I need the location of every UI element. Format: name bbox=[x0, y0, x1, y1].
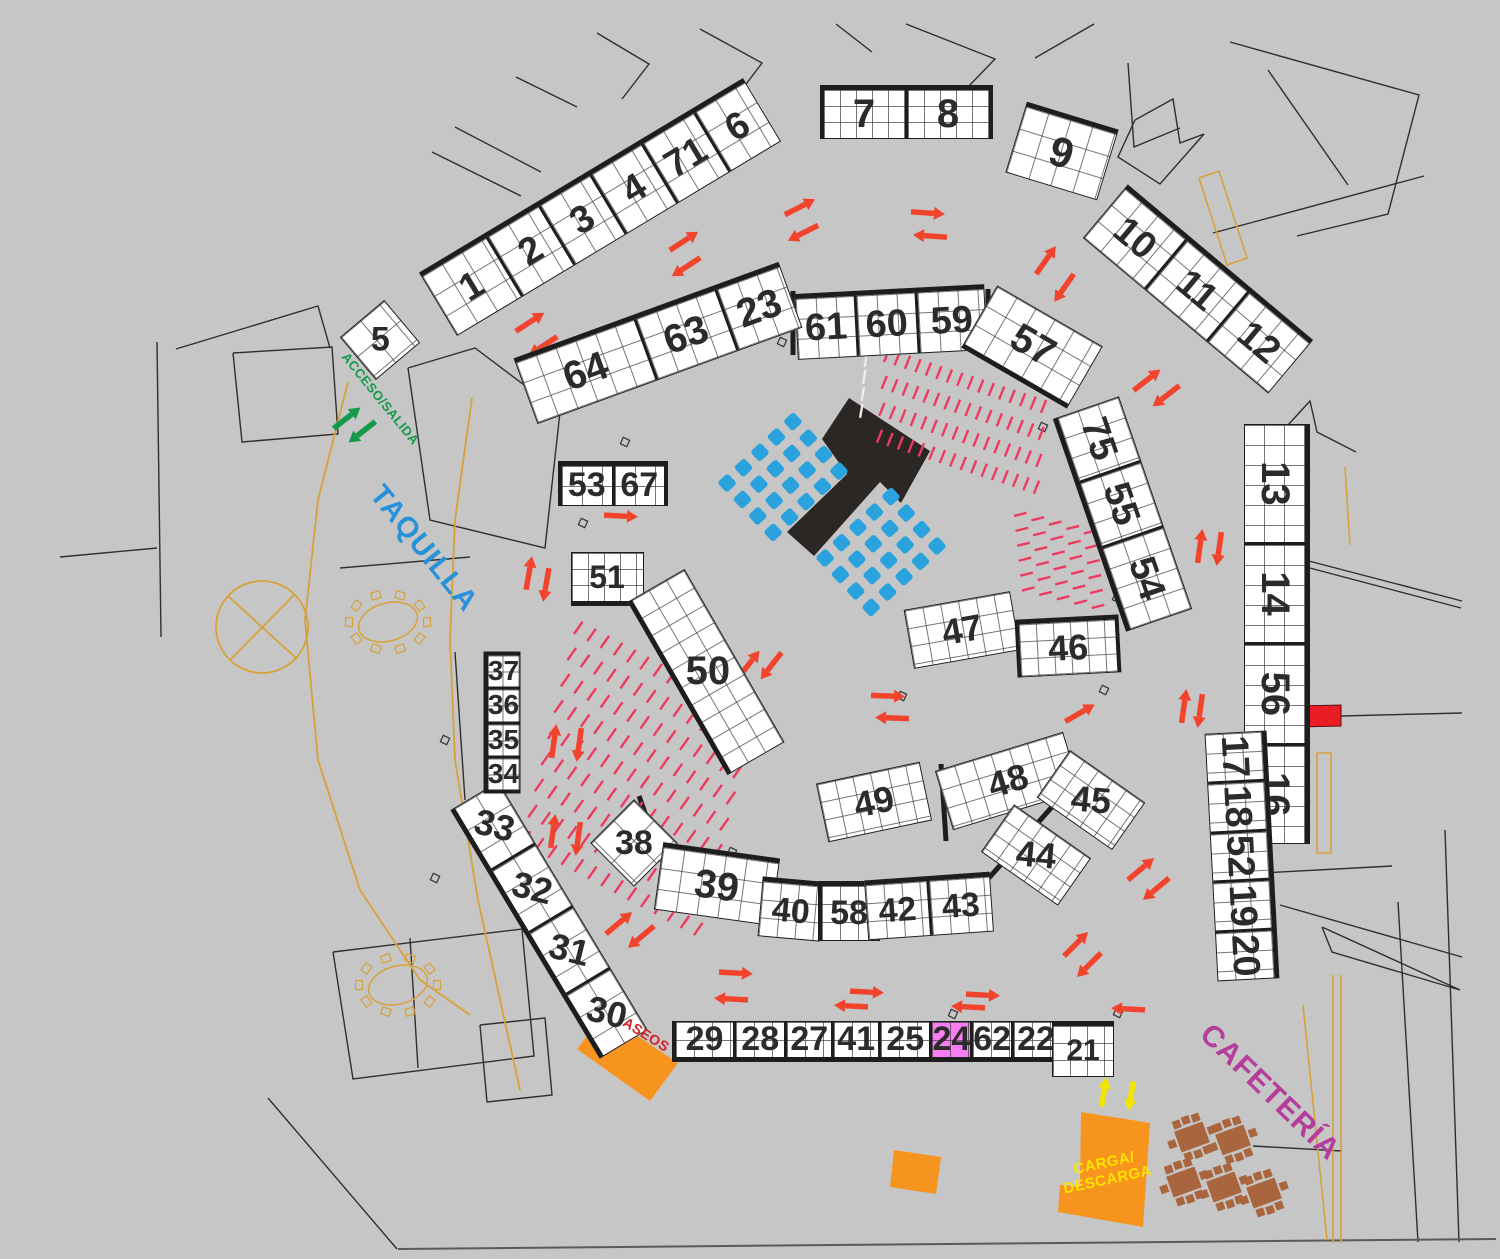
booth-number: 60 bbox=[865, 304, 909, 344]
wall-line bbox=[1306, 567, 1461, 608]
seat-row-mark bbox=[654, 783, 663, 795]
chair-outline bbox=[424, 963, 435, 974]
seat-row-mark bbox=[1005, 444, 1010, 457]
cafeteria-table bbox=[1222, 1118, 1232, 1128]
seat-row-mark bbox=[700, 778, 709, 790]
flow-arrow-head bbox=[989, 989, 1000, 1002]
flow-arrow-shaft bbox=[577, 822, 580, 845]
seat-row-mark bbox=[681, 916, 690, 928]
seat-row-mark bbox=[574, 681, 583, 693]
booth-21: 21 bbox=[1053, 1026, 1113, 1076]
booth-60: 60 bbox=[853, 293, 917, 356]
wall-line bbox=[1268, 70, 1348, 185]
flow-arrow-shaft bbox=[1199, 694, 1202, 717]
blue-seat bbox=[927, 536, 947, 556]
booth-strip-40: 40 bbox=[758, 876, 825, 941]
cafeteria-table bbox=[1222, 1162, 1232, 1172]
flow-arrow-shaft bbox=[516, 319, 535, 332]
blue-seat bbox=[865, 502, 885, 522]
seat-row-mark bbox=[1055, 581, 1068, 584]
blue-seat bbox=[798, 428, 818, 448]
seat-row-mark bbox=[654, 723, 663, 735]
seat-row-mark bbox=[1022, 587, 1035, 590]
booth-number: 23 bbox=[731, 282, 786, 335]
booth-53: 53 bbox=[562, 466, 612, 505]
cafeteria-table bbox=[1175, 1196, 1185, 1206]
flow-arrow-head bbox=[1098, 1077, 1111, 1089]
flow-arrow-shaft bbox=[962, 1007, 985, 1008]
blue-seat bbox=[880, 519, 900, 539]
flow-arrow-shaft bbox=[1161, 386, 1179, 400]
seat-row-mark bbox=[594, 781, 603, 793]
seat-row-mark bbox=[548, 786, 557, 798]
seat-row-mark bbox=[561, 793, 570, 805]
seat-row-mark bbox=[978, 380, 983, 393]
seat-row-mark bbox=[561, 674, 570, 686]
booth-number: 17 bbox=[1215, 735, 1255, 779]
seat-row-mark bbox=[862, 387, 864, 401]
flow-arrow-shaft bbox=[606, 919, 624, 934]
cafeteria-table bbox=[1255, 1207, 1265, 1217]
wall-line bbox=[455, 652, 465, 800]
seat-row-mark bbox=[926, 363, 931, 376]
seat-row-mark bbox=[641, 895, 650, 907]
seat-row-mark bbox=[528, 805, 537, 817]
cafeteria-table bbox=[1172, 1119, 1182, 1129]
seat-row-mark bbox=[1013, 474, 1018, 487]
seat-row-mark bbox=[968, 376, 973, 389]
seat-row-mark bbox=[561, 852, 570, 864]
booth-number: 28 bbox=[741, 1022, 779, 1056]
blue-seat bbox=[717, 473, 737, 493]
booth-36: 36 bbox=[489, 686, 520, 720]
door-marker bbox=[440, 735, 449, 744]
chair-outline bbox=[361, 996, 372, 1007]
flow-arrow-shaft bbox=[719, 972, 742, 973]
booth-strip-42-43: 4243 bbox=[864, 872, 994, 941]
seat-row-mark bbox=[986, 410, 991, 423]
booth-37: 37 bbox=[489, 655, 520, 686]
seat-row-mark bbox=[976, 407, 981, 420]
cafeteria-table bbox=[1193, 1149, 1203, 1159]
booth-number: 47 bbox=[939, 609, 985, 651]
seat-row-mark bbox=[628, 888, 637, 900]
seat-row-mark bbox=[535, 779, 544, 791]
cafeteria-table bbox=[1190, 1112, 1200, 1122]
booth-number: 12 bbox=[1230, 314, 1287, 370]
wall-line bbox=[268, 1098, 397, 1249]
blue-seat bbox=[763, 522, 783, 542]
blue-seat bbox=[896, 503, 916, 523]
chair-outline bbox=[356, 981, 363, 990]
flow-arrow-head bbox=[547, 814, 560, 826]
booth-number: 42 bbox=[877, 892, 917, 929]
seat-row-mark bbox=[575, 859, 584, 871]
seat-row-mark bbox=[1092, 605, 1105, 608]
flow-arrow-head bbox=[1194, 529, 1207, 541]
seat-row-mark bbox=[929, 447, 934, 460]
seat-row-mark bbox=[634, 683, 643, 695]
booth-number: 14 bbox=[1255, 571, 1295, 616]
seat-row-mark bbox=[1016, 528, 1029, 531]
seat-row-mark bbox=[693, 745, 702, 757]
booth-number: 21 bbox=[1066, 1036, 1099, 1066]
booth-strip-46: 46 bbox=[1015, 614, 1122, 677]
wall-line bbox=[1128, 63, 1180, 147]
booth-number: 32 bbox=[508, 865, 556, 910]
booth-20: 20 bbox=[1216, 928, 1275, 981]
seat-row-mark bbox=[1036, 454, 1041, 467]
seat-row-mark bbox=[1036, 562, 1049, 565]
flow-arrow-head bbox=[714, 992, 725, 1005]
chair-outline bbox=[395, 644, 406, 653]
seat-row-mark bbox=[568, 767, 577, 779]
booth-number: 52 bbox=[1220, 834, 1260, 878]
seat-row-mark bbox=[1033, 532, 1046, 535]
seat-row-mark bbox=[647, 750, 656, 762]
flow-arrow-shaft bbox=[785, 204, 805, 214]
seat-row-mark bbox=[588, 748, 597, 760]
seat-row-mark bbox=[913, 386, 918, 399]
seat-row-mark bbox=[587, 629, 596, 641]
seat-row-mark bbox=[1038, 577, 1051, 580]
seat-row-mark bbox=[932, 420, 937, 433]
chair-outline bbox=[414, 600, 425, 611]
chair-outline bbox=[351, 633, 362, 644]
cafeteria-table bbox=[1225, 1199, 1235, 1209]
cafeteria-table bbox=[1173, 1160, 1183, 1170]
chair-outline bbox=[381, 954, 392, 963]
seat-row-mark bbox=[601, 755, 610, 767]
booth-number: 4 bbox=[615, 167, 653, 210]
cafeteria-table bbox=[1265, 1205, 1275, 1215]
booth-34: 34 bbox=[489, 755, 520, 789]
seat-row-mark bbox=[1019, 558, 1032, 561]
cafeteria-table bbox=[1164, 1164, 1174, 1174]
seat-row-mark bbox=[627, 769, 636, 781]
seat-row-mark bbox=[673, 704, 682, 716]
cafeteria-table bbox=[1243, 1147, 1253, 1157]
cafeteria-table bbox=[1159, 1184, 1169, 1194]
booth-number: 57 bbox=[1004, 317, 1063, 374]
door-marker bbox=[578, 518, 587, 527]
booth-40: 40 bbox=[759, 881, 823, 940]
booth-52: 52 bbox=[1211, 828, 1270, 881]
seat-row-mark bbox=[1068, 541, 1081, 544]
exhibition-floor-plan: 1234716578910111261605957646323755554131… bbox=[0, 0, 1500, 1259]
booth-13: 13 bbox=[1245, 425, 1305, 542]
flow-arrow-shaft bbox=[636, 926, 654, 941]
booth-strip-7-8: 78 bbox=[820, 85, 993, 139]
wall-line bbox=[516, 77, 577, 107]
seat-row-mark bbox=[1052, 551, 1065, 554]
booth-42: 42 bbox=[865, 881, 929, 939]
booth-51: 51 bbox=[572, 553, 643, 601]
flow-arrow-shaft bbox=[1061, 274, 1074, 293]
seat-row-mark bbox=[601, 695, 610, 707]
wall-line bbox=[60, 548, 157, 557]
flow-arrow-head bbox=[1111, 1002, 1122, 1015]
booth-62: 62 bbox=[970, 1022, 1011, 1057]
booth-number: 19 bbox=[1223, 884, 1263, 928]
booth-56: 56 bbox=[1245, 642, 1305, 742]
seat-row-mark bbox=[588, 867, 597, 879]
seat-row-mark bbox=[923, 390, 928, 403]
seat-row-mark bbox=[921, 416, 926, 429]
chair-outline bbox=[424, 996, 435, 1007]
booth-number: 35 bbox=[488, 725, 519, 753]
booth-strip-37-34: 37363534 bbox=[484, 651, 521, 793]
seat-row-mark bbox=[1039, 592, 1052, 595]
seat-row-mark bbox=[942, 423, 947, 436]
seat-row-mark bbox=[1054, 566, 1067, 569]
blue-seat bbox=[847, 549, 867, 569]
seat-row-mark bbox=[1070, 556, 1083, 559]
flow-arrow-head bbox=[539, 590, 552, 602]
flow-arrow-shaft bbox=[1198, 540, 1201, 563]
flow-arrow-shaft bbox=[526, 567, 530, 590]
wall-line bbox=[233, 347, 338, 442]
flow-arrow-shaft bbox=[578, 728, 581, 751]
round-table-outline bbox=[354, 596, 422, 648]
booth-number: 6 bbox=[719, 105, 757, 148]
wall-line bbox=[906, 24, 995, 89]
orange-block bbox=[890, 1150, 941, 1194]
flow-arrow-head bbox=[524, 556, 537, 568]
seat-row-mark bbox=[687, 771, 696, 783]
blue-seat bbox=[862, 566, 882, 586]
seat-row-mark bbox=[1073, 586, 1086, 589]
seat-row-mark bbox=[720, 818, 729, 830]
wall-line bbox=[1317, 753, 1331, 853]
booth-number: 67 bbox=[620, 468, 658, 502]
seat-row-mark bbox=[1015, 447, 1020, 460]
blue-seat bbox=[831, 565, 851, 585]
seat-row-mark bbox=[940, 450, 945, 463]
seat-row-mark bbox=[1041, 400, 1046, 413]
seat-row-mark bbox=[1087, 560, 1100, 563]
seat-row-mark bbox=[1020, 393, 1025, 406]
seat-row-mark bbox=[660, 697, 669, 709]
seat-row-mark bbox=[1017, 543, 1030, 546]
booth-18: 18 bbox=[1208, 779, 1267, 832]
seat-row-mark bbox=[674, 823, 683, 835]
booth-strip-61-59: 616059 bbox=[794, 284, 987, 360]
seat-row-mark bbox=[1020, 573, 1033, 576]
seat-row-mark bbox=[890, 406, 895, 419]
seat-row-mark bbox=[587, 688, 596, 700]
seat-row-mark bbox=[955, 400, 960, 413]
flow-arrow-shaft bbox=[1065, 710, 1085, 722]
booth-number: 58 bbox=[830, 896, 868, 930]
wall-line bbox=[480, 1018, 552, 1102]
seat-row-mark bbox=[1018, 420, 1023, 433]
booth-41: 41 bbox=[831, 1022, 878, 1057]
seat-row-mark bbox=[554, 700, 563, 712]
booth-number: 24 bbox=[932, 1022, 970, 1056]
seat-row-mark bbox=[1002, 471, 1007, 484]
blue-seat bbox=[911, 551, 931, 571]
seat-row-mark bbox=[674, 764, 683, 776]
booth-number: 39 bbox=[692, 863, 742, 909]
seat-row-mark bbox=[1089, 575, 1102, 578]
door-marker bbox=[620, 437, 629, 446]
flow-arrow-shaft bbox=[552, 735, 555, 758]
booth-43: 43 bbox=[926, 877, 993, 935]
seat-row-mark bbox=[965, 403, 970, 416]
blue-seat bbox=[895, 535, 915, 555]
seat-row-mark bbox=[1090, 590, 1103, 593]
booth-46: 46 bbox=[1019, 620, 1118, 677]
chair-outline bbox=[346, 618, 353, 627]
seat-row-mark bbox=[1014, 513, 1027, 516]
seat-row-mark bbox=[882, 376, 887, 389]
blue-seat bbox=[797, 460, 817, 480]
seat-row-mark bbox=[1057, 596, 1070, 599]
booth-number: 50 bbox=[685, 651, 730, 691]
flow-arrow-head bbox=[571, 844, 584, 856]
seat-row-mark bbox=[1074, 601, 1087, 604]
flow-arrow-shaft bbox=[1218, 532, 1221, 555]
seat-row-mark bbox=[581, 833, 590, 845]
seat-row-mark bbox=[614, 881, 623, 893]
seat-row-mark bbox=[680, 797, 689, 809]
seat-row-mark bbox=[953, 427, 958, 440]
seat-row-mark bbox=[1030, 397, 1035, 410]
chair-outline bbox=[424, 618, 431, 627]
seat-row-mark bbox=[680, 737, 689, 749]
booth-number: 43 bbox=[941, 888, 981, 925]
flow-arrow-head bbox=[572, 750, 585, 762]
booth-28: 28 bbox=[733, 1022, 784, 1057]
booth-number: 64 bbox=[558, 345, 613, 398]
wall-line bbox=[597, 33, 649, 99]
seat-row-mark bbox=[903, 383, 908, 396]
cafeteria-table-group bbox=[1202, 1111, 1264, 1169]
seat-row-mark bbox=[1049, 522, 1062, 525]
seat-row-mark bbox=[555, 760, 564, 772]
chair-outline bbox=[351, 600, 362, 611]
blue-seat bbox=[764, 491, 784, 511]
cafeteria-table bbox=[1181, 1115, 1191, 1125]
seat-row-mark bbox=[944, 396, 949, 409]
wall-line bbox=[1445, 830, 1459, 1242]
flow-arrow-shaft bbox=[911, 212, 934, 214]
booth-25: 25 bbox=[878, 1022, 929, 1057]
seat-row-mark bbox=[627, 650, 636, 662]
seat-row-mark bbox=[963, 430, 968, 443]
flow-arrow-shaft bbox=[1134, 376, 1152, 390]
wall-line bbox=[305, 382, 470, 1015]
flow-arrow-shaft bbox=[1182, 700, 1185, 723]
seat-row-mark bbox=[568, 826, 577, 838]
seat-row-mark bbox=[1010, 390, 1015, 403]
blue-seat bbox=[733, 490, 753, 510]
booth-number: 11 bbox=[1169, 263, 1224, 318]
seat-row-mark bbox=[1028, 424, 1033, 437]
seat-row-mark bbox=[607, 728, 616, 740]
seat-row-mark bbox=[905, 356, 910, 369]
blue-seat bbox=[734, 458, 754, 478]
seat-row-mark bbox=[621, 736, 630, 748]
wall-line bbox=[1398, 902, 1418, 1242]
flow-arrow-shaft bbox=[1128, 865, 1146, 880]
booth-number: 5 bbox=[371, 323, 390, 357]
cafeteria-table bbox=[1253, 1171, 1263, 1181]
seat-row-mark bbox=[713, 785, 722, 797]
booth-24: 24 bbox=[929, 1022, 970, 1057]
flow-arrow-shaft bbox=[767, 653, 781, 671]
blue-seat bbox=[863, 534, 883, 554]
booth-number: 36 bbox=[488, 691, 519, 719]
blue-seat bbox=[767, 427, 787, 447]
wall-line bbox=[1213, 176, 1424, 233]
booth-number: 13 bbox=[1255, 461, 1295, 506]
seat-row-mark bbox=[574, 622, 583, 634]
flow-arrow-shaft bbox=[545, 568, 549, 591]
seat-row-mark bbox=[575, 800, 584, 812]
booth-number: 54 bbox=[1121, 552, 1171, 604]
booth-number: 10 bbox=[1106, 210, 1163, 266]
booth-strip-29-22: 2928274125246222 bbox=[672, 1021, 1062, 1062]
seat-row-mark bbox=[992, 467, 997, 480]
cafeteria-table-group bbox=[1233, 1164, 1295, 1222]
blue-seat bbox=[861, 597, 881, 617]
flow-arrow-shaft bbox=[1130, 1081, 1133, 1100]
booth-number: 8 bbox=[937, 94, 959, 134]
flow-arrow-shaft bbox=[604, 515, 627, 516]
blue-seat bbox=[878, 582, 898, 602]
booth-number: 46 bbox=[1047, 629, 1089, 667]
wall-line bbox=[1345, 467, 1350, 545]
chair-outline bbox=[381, 1007, 392, 1016]
seat-row-mark bbox=[997, 413, 1002, 426]
seat-row-mark bbox=[541, 753, 550, 765]
seat-row-mark bbox=[1035, 547, 1048, 550]
cafeteria-table bbox=[1215, 1201, 1225, 1211]
chair-outline bbox=[371, 644, 382, 653]
seat-row-mark bbox=[1026, 450, 1031, 463]
flow-arrow-shaft bbox=[798, 225, 818, 235]
flow-arrow-shaft bbox=[1151, 878, 1169, 893]
booth-number: 38 bbox=[615, 826, 653, 860]
stair-circle-cross bbox=[230, 594, 295, 660]
flow-arrow-shaft bbox=[1122, 1009, 1145, 1010]
seat-row-mark bbox=[707, 811, 716, 823]
booth-number: 63 bbox=[658, 309, 713, 362]
seat-row-mark bbox=[957, 373, 962, 386]
chair-outline bbox=[434, 981, 441, 990]
booth-number: 40 bbox=[770, 892, 811, 929]
booth-number: 2 bbox=[512, 229, 550, 272]
flow-arrow-shaft bbox=[871, 695, 894, 696]
seat-row-mark bbox=[982, 464, 987, 477]
seat-row-mark bbox=[641, 776, 650, 788]
seat-row-mark bbox=[961, 457, 966, 470]
door-marker bbox=[948, 1009, 957, 1018]
seat-row-mark bbox=[1071, 571, 1084, 574]
cafeteria-table-group bbox=[1161, 1108, 1223, 1166]
booth-number: 7 bbox=[853, 94, 875, 134]
seat-row-mark bbox=[971, 460, 976, 473]
cafeteria-table bbox=[1279, 1181, 1289, 1191]
flow-arrow-head bbox=[742, 967, 753, 980]
seat-row-mark bbox=[600, 636, 609, 648]
seat-row-mark bbox=[601, 874, 610, 886]
seat-row-mark bbox=[667, 790, 676, 802]
flow-arrow-shaft bbox=[845, 1006, 868, 1007]
booth-number: 75 bbox=[1073, 413, 1123, 465]
